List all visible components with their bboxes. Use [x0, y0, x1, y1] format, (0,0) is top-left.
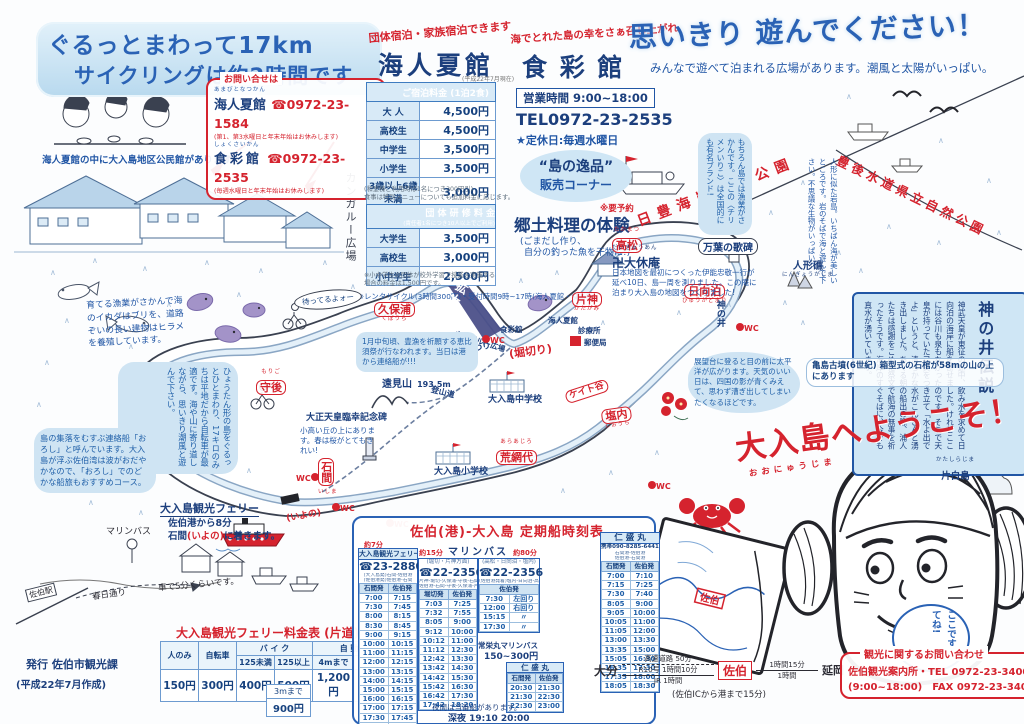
tt-a-col1: 石間発	[360, 584, 389, 594]
fare-extra-label: 3mまで	[267, 685, 311, 699]
poi-post: 郵便局	[584, 339, 607, 347]
fare-value: 1,200円	[313, 670, 355, 702]
table-row: 17:3017:45	[360, 713, 417, 722]
publisher-line1: 発行 佐伯市観光課	[26, 656, 118, 672]
table-cell: 9:00	[448, 618, 477, 627]
table-cell: 15:30	[448, 673, 477, 682]
daikyuan-note: 日本地図を最初につくった伊能忠敬一行が延べ10日、島一周を測りました。この庵に泊…	[612, 268, 760, 297]
access-seg2-top: 1時間15分	[756, 660, 818, 670]
table-row: 9:1210:00	[420, 627, 477, 636]
headline-sub: みんなで遊べて泊まれる広場があります。潮風と太陽がいっぱい。	[650, 60, 993, 76]
table-row: 7:007:10	[602, 572, 659, 581]
fare-extra-value: 900円	[267, 699, 311, 717]
shokusai-furigana: しょくさいかん	[214, 143, 378, 149]
tt-b-time: 約15分	[419, 549, 443, 557]
table-cell: 17:00	[360, 704, 389, 713]
table-cell: 7:30	[602, 590, 631, 599]
table-cell: 15:00	[630, 645, 659, 654]
bird-icons	[893, 92, 958, 113]
place-ishima: 石間 いしま	[318, 458, 338, 496]
poi-kaminoi: 神の井	[714, 300, 724, 334]
table-row: 13:4214:30	[420, 664, 477, 673]
access-seg1: 高速道路 50分 R10号 1時間10分 JR 1時間	[622, 654, 714, 686]
table-cell: 7:30	[480, 595, 510, 604]
post-office-icon	[570, 336, 581, 346]
fare-bike: バ イ ク	[237, 642, 313, 656]
boat-illustrations	[618, 92, 958, 195]
table-cell: 大 人	[367, 102, 420, 121]
table-cell: 15:42	[420, 682, 449, 691]
shima-ippin: “島の逸品”	[520, 156, 632, 176]
table-cell: 17:30	[480, 622, 510, 631]
daikyuan-furigana: だいきゅうあん	[612, 246, 660, 252]
table-cell: 11:00	[448, 636, 477, 645]
tt-ferry-table: 大入島観光フェリー ☎23-2880 (大入島発)石間-佐伯港 (佐伯港発)佐伯…	[358, 548, 418, 724]
table-row: 大学生3,500円	[367, 229, 496, 248]
tt-e-name: 仁 盛 丸	[507, 663, 563, 673]
tt-marine-label: マリンバス	[448, 547, 508, 558]
table-cell: 20:30	[508, 684, 536, 693]
tt-c-col1: 佐伯発	[480, 585, 539, 595]
tt-d-col1: 石間発	[602, 562, 631, 572]
tt-a-col2: 佐伯発	[388, 584, 417, 594]
table-cell: 12:00	[360, 658, 389, 667]
hall-caption: 海人夏館の中に大入島地区公民館があります	[42, 152, 232, 166]
group-note: ※小中学生の団体が校外学習で授業を実施する場合の料金は1,500円です。	[364, 272, 500, 288]
banner-line1: ぐるっとまわって17km	[48, 26, 370, 60]
table-cell: 13:42	[420, 664, 449, 673]
place-shiouchi: 塩内 しおうち	[600, 402, 633, 430]
table-cell: 8:00	[360, 612, 389, 621]
table-cell: 7:15	[602, 581, 631, 590]
table-row: 11:0512:00	[602, 627, 659, 636]
table-cell: 7:55	[448, 609, 477, 618]
yoshoku-note: 育てる漁業がさかんで海のイカダはブリを、道路ぞいの長い建物はヒラメを養殖していま…	[86, 295, 193, 351]
table-row: 9:0510:00	[602, 608, 659, 617]
table-cell: 17:15	[388, 704, 417, 713]
table-cell: 15:15	[480, 613, 510, 622]
table-row: 15:15〃	[480, 613, 539, 622]
table-row: 21:3022:30	[508, 693, 563, 702]
place-morigo: もりご 守後	[256, 370, 286, 395]
poi-amabito: 海人夏館	[548, 317, 578, 325]
table-cell: 10:15	[388, 640, 417, 649]
table-row: 小学生3,500円	[367, 159, 496, 178]
table-row: 7:307:45	[360, 603, 417, 612]
table-cell: 3,000円	[420, 248, 496, 267]
table-cell: 3,500円	[420, 229, 496, 248]
ishima-label: 石間	[318, 458, 334, 486]
tt-a-route2: (佐伯港発)佐伯港-石間	[359, 578, 417, 583]
wc-marker: WC	[332, 496, 355, 515]
poi-kofun: 亀島古墳(6世紀) 箱型式の石棺が58mの山の上にあります	[806, 358, 1004, 387]
table-cell: 7:32	[420, 609, 449, 618]
amabito-furigana: あまびとなつかん	[214, 88, 378, 94]
group-header: 団 体 研 修 料 金	[425, 209, 495, 219]
lodging-note2: 食事は特別メニューについても追加料金に応じます。	[364, 192, 514, 201]
shokusai-title: 食 彩 館	[522, 48, 624, 84]
poi-ningyo: 人形礁 にんぎょうがしま	[782, 254, 834, 279]
table-row: 高校生3,000円	[367, 248, 496, 267]
table-row: 16:4217:30	[420, 692, 477, 701]
table-row: 8:008:15	[360, 612, 417, 621]
table-row: 20:3021:30	[508, 684, 563, 693]
fare-bicycle: 自転車	[199, 642, 237, 670]
access-seg2: 1時間15分 1時間	[756, 660, 818, 681]
table-cell: 8:05	[602, 599, 631, 608]
table-row: 7:307:40	[602, 590, 659, 599]
access-seg2-bottom: 1時間	[756, 670, 818, 681]
tt-a-tel: ☎23-2880	[359, 560, 417, 573]
tt-c-sub: (高松・日向泊・塩内)	[479, 559, 539, 566]
table-row: 高校生4,500円	[367, 121, 496, 140]
table-cell: 10:05	[602, 618, 631, 627]
oroshi-bubble: 島の集落をむすぶ連絡船「おろし」と呼んでいます。大入島が浮ぶ佐伯湾は波がおだやか…	[34, 428, 156, 493]
table-row: 大 人4,500円	[367, 102, 496, 121]
group-subheader: (責任者1名につき10人以上でご利用)	[367, 219, 495, 227]
tt-b-col2: 佐伯発	[448, 590, 477, 600]
table-row: 12:4213:30	[420, 655, 477, 664]
table-cell: 15:00	[360, 686, 389, 695]
shokusai-note: (毎週水曜日と年末年始はお休みします)	[214, 186, 378, 195]
access-note: (佐伯ICから港まで15分)	[594, 688, 844, 700]
table-cell: 13:30	[630, 636, 659, 645]
table-row: 12:00右回り	[480, 604, 539, 613]
table-cell: 22:30	[535, 693, 563, 702]
port-line2c: に着きます。	[224, 531, 280, 542]
table-cell: 中学生	[367, 140, 420, 159]
tt-c-time: 約80分	[513, 549, 537, 557]
table-cell: 14:42	[420, 673, 449, 682]
table-row: 16:0016:15	[360, 695, 417, 704]
table-cell: 12:00	[480, 604, 510, 613]
tt-c-route1: (佐伯港発着)塩内-日向泊-高松回り	[479, 579, 539, 584]
tt-e-col2: 佐伯発	[535, 674, 563, 684]
takamatsu-furigana: たかまつ	[612, 228, 642, 234]
night-note2: 深夜 19:10 20:00	[448, 711, 530, 724]
tt-d-name: 仁 盛 丸	[601, 533, 659, 544]
shokusai-tel-big: TEL0972-23-2535	[516, 110, 673, 129]
fare-extra: 3mまで 900円	[266, 684, 311, 717]
table-cell: 10:12	[420, 636, 449, 645]
table-cell: 高校生	[367, 121, 420, 140]
katagami-label: 片神	[572, 292, 602, 307]
table-row: 8:059:00	[602, 599, 659, 608]
table-cell: 13:00	[602, 636, 631, 645]
poi-junior-high: 大入島中学校	[488, 396, 542, 406]
table-cell: 7:45	[388, 603, 417, 612]
tt-a-name: 大入島観光フェリー	[359, 549, 417, 560]
shokusai-name: 食彩館	[214, 152, 262, 167]
table-row: 10:0511:00	[602, 618, 659, 627]
table-cell: 15:15	[388, 686, 417, 695]
table-row: 13:3515:00	[602, 645, 659, 654]
table-cell: 11:05	[602, 627, 631, 636]
table-row: 8:059:00	[420, 618, 477, 627]
table-cell: 7:03	[420, 600, 449, 609]
table-cell: 17:30	[360, 713, 389, 722]
place-kubora: 久保浦 くぼうら	[374, 298, 415, 323]
shokusai-hours: 営業時間 9:00~18:00	[516, 88, 655, 108]
poi-clinic: 診療所	[578, 327, 601, 335]
chirimen-bubble: もちろん島では漁業がさかんです。ここの〈チリメンいりこ〉は全国的にも有名ブランド…	[698, 133, 752, 235]
table-cell: 7:40	[630, 590, 659, 599]
access-via-top: 高速道路 50分	[622, 654, 714, 664]
wc-marker: WC	[736, 316, 759, 335]
tt-b-sub: (堀切・片神方面)	[419, 559, 477, 566]
access-via-bottom: JR 1時間	[622, 675, 714, 686]
amabito-name: 海人夏館	[214, 98, 266, 113]
tt-loop-table: (高松・日向泊・塩内) ☎22-2356 (佐伯港発着)塩内-日向泊-高松回り …	[478, 558, 540, 633]
table-row: 11:0011:15	[360, 649, 417, 658]
table-row: 12:0012:15	[360, 658, 417, 667]
table-cell: 7:30	[360, 603, 389, 612]
table-cell: 10:00	[360, 640, 389, 649]
table-row: 13:0013:15	[360, 667, 417, 676]
table-row: 8:308:45	[360, 621, 417, 630]
kubora-furigana: くぼうら	[374, 317, 415, 323]
tt-d-col2: 佐伯発	[630, 562, 659, 572]
table-cell: 7:10	[630, 572, 659, 581]
fare-value: 150円	[161, 670, 199, 702]
publisher-line2: (平成22年7月作成)	[16, 676, 106, 691]
kubora-label: 久保浦	[374, 302, 415, 317]
table-cell: 8:45	[388, 621, 417, 630]
table-cell: 12:15	[388, 658, 417, 667]
fare-title: 大入島観光フェリー料金表 (片道)	[176, 624, 359, 641]
table-cell: 21:30	[508, 693, 536, 702]
table-cell: 9:05	[602, 608, 631, 617]
fare-bike1: 125未満	[237, 656, 275, 670]
table-row: 9:009:15	[360, 630, 417, 639]
table-row: 7:007:15	[360, 594, 417, 603]
table-cell: 7:00	[360, 594, 389, 603]
poi-manyo: 万葉の歌碑	[698, 238, 758, 255]
table-row: 14:0014:15	[360, 676, 417, 685]
monument-note: 小高い丘の上にあります。春は桜がとてもきれい!	[300, 426, 376, 455]
table-cell: 12:42	[420, 655, 449, 664]
table-cell: 9:00	[630, 599, 659, 608]
fare-car1: 4mまで	[313, 656, 355, 670]
people-illustration	[54, 92, 186, 144]
access-from: 大分	[594, 662, 618, 679]
table-row: 15:0015:15	[360, 686, 417, 695]
poi-daikyuan: だいきゅうあん 卍大休庵	[612, 246, 660, 271]
fare-value: 300円	[199, 670, 237, 702]
wc-marker: WC	[296, 466, 319, 485]
inquiry-title: お問い合せは	[220, 72, 282, 85]
ebisu-bubble: 1月中旬頃、豊漁を祈願する恵比須祭が行なわれます。当日は港から連絡船が!!!	[356, 332, 478, 372]
table-row: 中学生3,500円	[367, 140, 496, 159]
table-cell: 17:45	[388, 713, 417, 722]
table-cell: 16:15	[388, 695, 417, 704]
table-cell: 10:00	[630, 608, 659, 617]
tt-c-note2: 150~300円	[484, 649, 538, 662]
table-cell: 12:00	[630, 627, 659, 636]
table-cell: 8:15	[388, 612, 417, 621]
port-line1: 佐伯港から8分	[168, 515, 232, 529]
table-cell: 小学生	[367, 159, 420, 178]
amabito-note: (第1、第3水曜日と年末年始はお休みします)	[214, 132, 378, 141]
table-cell: 〃	[509, 622, 539, 631]
port-line2a: 石間	[168, 531, 187, 542]
table-cell: 16:30	[448, 682, 477, 691]
ningyo-furigana: にんぎょうがしま	[782, 273, 834, 279]
inquiry-box: お問い合せは あまびとなつかん 海人夏館 ☎0972-23-1584 (第1、第…	[206, 78, 386, 200]
table-row: 15:4216:30	[420, 682, 477, 691]
table-row: 10:1211:00	[420, 636, 477, 645]
wc-marker: WC	[648, 474, 671, 493]
table-cell: 右回り	[509, 604, 539, 613]
table-cell: 14:30	[448, 664, 477, 673]
table-cell: 16:42	[420, 692, 449, 701]
table-cell: 8:05	[420, 618, 449, 627]
table-cell: 左回り	[509, 595, 539, 604]
table-row: 7:327:55	[420, 609, 477, 618]
morigo-furigana: もりご	[256, 370, 286, 376]
tt-b-tel: ☎22-2356	[419, 566, 477, 579]
ningyo-label: 人形礁	[793, 261, 823, 272]
table-cell: 8:30	[360, 621, 389, 630]
araajiro-furigana: あらあじろ	[496, 440, 537, 446]
access-hub: 佐伯	[718, 661, 752, 680]
table-cell: 7:00	[602, 572, 631, 581]
table-cell: 11:00	[630, 618, 659, 627]
onyujima-tourist-map: 佐伯 ∧∧∧∧∧∧∧∧∧∧∧∧∧∧∧∧∧∧∧∧∧∧∧∧∧∧∧∧∧∧∧∧∧∧∧∧∧…	[0, 0, 1024, 724]
table-cell: 7:25	[448, 600, 477, 609]
table-cell: 12:30	[448, 646, 477, 655]
table-cell: 14:15	[388, 676, 417, 685]
table-row: 13:0013:30	[602, 636, 659, 645]
table-row: 17:30〃	[480, 622, 539, 631]
poi-monument: 大正天皇臨幸記念碑	[306, 414, 387, 424]
table-cell: 大学生	[367, 229, 420, 248]
shima-ippin-oval: “島の逸品” 販売コーナー	[520, 150, 632, 202]
table-cell: 16:00	[360, 695, 389, 704]
camellia-flowers	[661, 392, 688, 420]
table-cell: 高校生	[367, 248, 420, 267]
table-cell: 3,500円	[420, 159, 496, 178]
tourism-contact-box: 観光に関するお問い合わせ 佐伯観光案内所・TEL 0972-23-3400 (9…	[840, 652, 1024, 699]
poi-elementary: 大入島小学校	[434, 468, 488, 478]
wc-marker: WC	[482, 328, 505, 347]
table-cell: 17:30	[448, 692, 477, 701]
shokusai-holiday: ★定休日:毎週水曜日	[516, 132, 618, 148]
table-cell: 21:30	[535, 684, 563, 693]
table-cell: 〃	[509, 613, 539, 622]
table-row: 7:037:25	[420, 600, 477, 609]
ishima-furigana: いしま	[318, 490, 338, 496]
port-line2: 石間(いよの)に着きます。	[168, 528, 280, 542]
poi-katashira: かたしらじま 片白島	[936, 458, 975, 483]
marine-bus-label: マリンバス	[106, 524, 151, 537]
katagami-furigana: かたがみ	[572, 307, 602, 313]
tt-b-col1: 堀切発	[420, 590, 449, 600]
table-cell: 11:00	[360, 649, 389, 658]
table-cell: 9:00	[360, 630, 389, 639]
table-cell: 11:15	[388, 649, 417, 658]
fare-bike2: 125以上	[275, 656, 313, 670]
table-row: 17:0017:15	[360, 704, 417, 713]
table-cell: 10:00	[448, 627, 477, 636]
table-cell: 9:12	[420, 627, 449, 636]
access-via-mid: R10号 1時間10分	[622, 664, 714, 675]
table-row: 10:0010:15	[360, 640, 417, 649]
table-cell: 11:12	[420, 646, 449, 655]
katashira-furigana: かたしらじま	[936, 458, 975, 464]
table-cell: 7:15	[388, 594, 417, 603]
table-cell: 23:00	[535, 702, 563, 711]
tt-d-tel: 携帯090-8285-6441	[601, 544, 659, 551]
tt-b-route2: 佐伯港-石間-守後-久保浦-片神	[419, 584, 477, 589]
table-row: 14:4215:30	[420, 673, 477, 682]
table-cell: 13:15	[388, 667, 417, 676]
table-row: 11:1212:30	[420, 646, 477, 655]
araajiro-label: 荒網代	[496, 450, 537, 465]
table-cell: 14:00	[360, 676, 389, 685]
contact-title: 観光に関するお問い合わせ	[860, 646, 988, 661]
table-cell: 7:25	[630, 581, 659, 590]
tenbo-bubble: 展望台に登ると目の前に太平洋が広がります。天気のいい日は、四国の影が青くみえて、…	[688, 352, 800, 413]
morigo-label: 守後	[256, 380, 286, 395]
table-cell: 3,500円	[420, 140, 496, 159]
access-diagram: 大分 高速道路 50分 R10号 1時間10分 JR 1時間 佐伯 1時間15分…	[594, 654, 844, 700]
table-cell: 4,500円	[420, 121, 496, 140]
contact-line2: (9:00~18:00) FAX 0972-23-3400	[848, 678, 1024, 693]
table-row: 7:157:25	[602, 581, 659, 590]
table-cell: 9:15	[388, 630, 417, 639]
fare-person: 人のみ	[161, 642, 199, 670]
place-katagami: 片神 かたがみ	[572, 288, 602, 313]
timetable-title: 佐伯(港)-大入島 定期船時刻表	[382, 521, 632, 540]
lodging-header: ご宿泊料金 (1泊2食)	[367, 83, 496, 102]
table-cell: 13:00	[360, 667, 389, 676]
tt-marine-strip: 約15分 マリンバス 約80分	[416, 540, 540, 559]
tt-c-tel: ☎22-2356	[479, 566, 539, 579]
table-cell: 4,500円	[420, 102, 496, 121]
table-cell: 13:30	[448, 655, 477, 664]
tt-e-col1: 石間発	[508, 674, 536, 684]
place-araajiro: あらあじろ 荒網代	[496, 440, 537, 465]
table-cell: 13:35	[602, 645, 631, 654]
table-row: 7:30左回り	[480, 595, 539, 604]
katashira-label: 片白島	[941, 471, 970, 482]
tomiyama-label: 遠見山	[382, 379, 412, 390]
hanbai-corner: 販売コーナー	[520, 176, 632, 193]
contact-line1: 佐伯観光案内所・TEL 0972-23-3400	[848, 663, 1024, 678]
port-line2b: (いよの)	[187, 531, 224, 542]
tt-marinebus-table: (堀切・片神方面) ☎22-2356 片神-堀切-久保浦-守後-石間 佐伯港-石…	[418, 558, 478, 711]
